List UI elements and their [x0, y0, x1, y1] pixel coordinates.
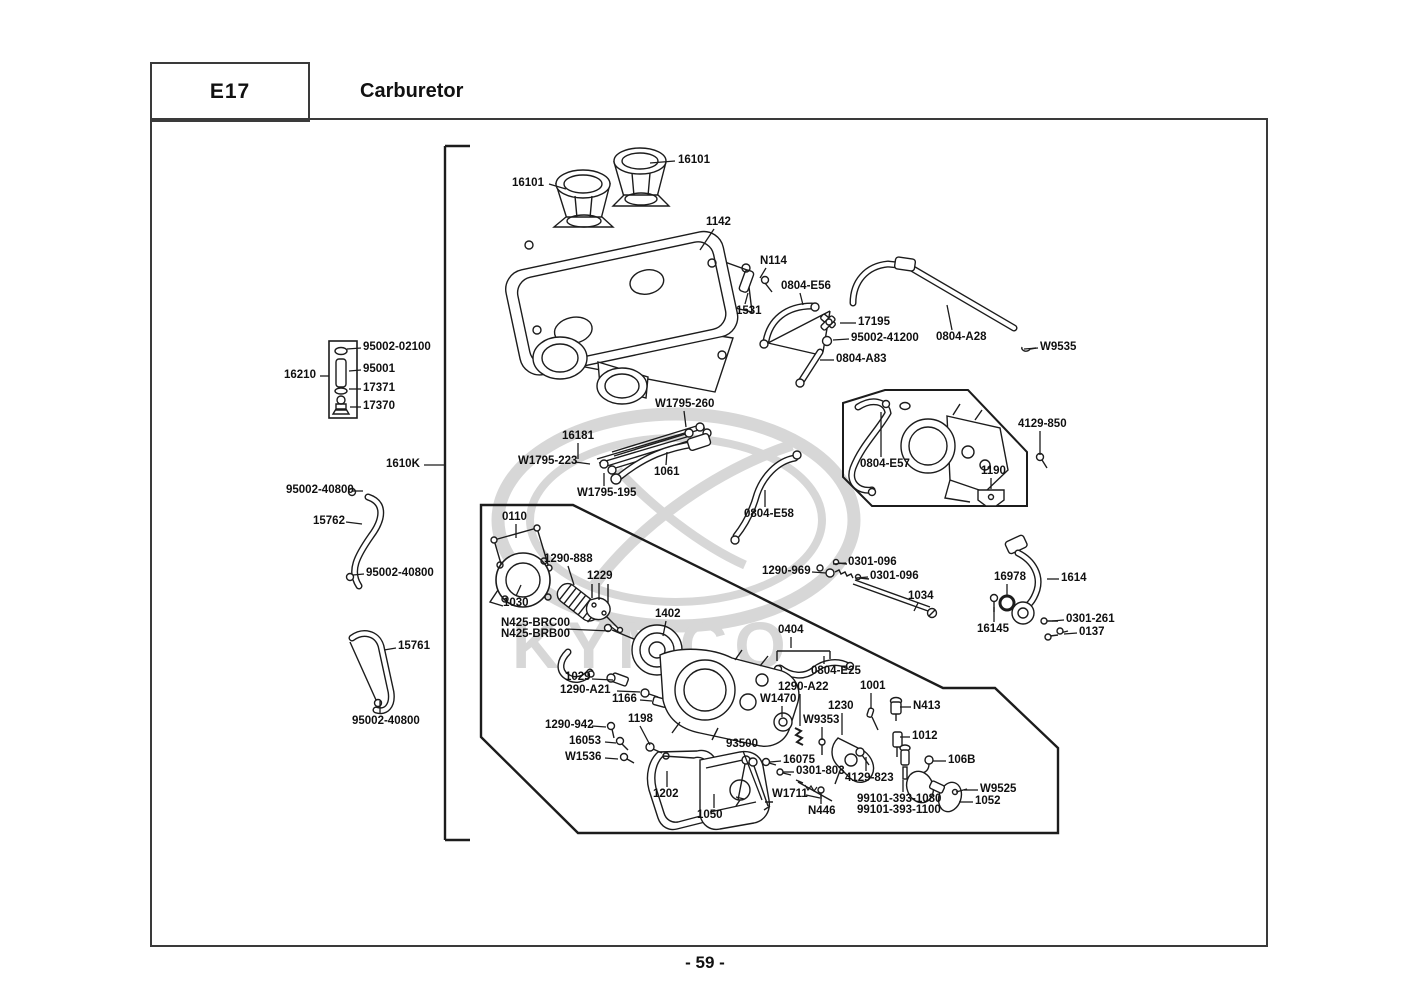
part-label-0404: 0404: [778, 625, 804, 636]
part-label-0301-096: 0301-096: [848, 557, 897, 568]
part-label-W1470: W1470: [760, 694, 796, 705]
part-label-1290-942: 1290-942: [545, 720, 594, 731]
part-label-1198: 1198: [628, 714, 653, 725]
part-label-0301-261: 0301-261: [1066, 614, 1115, 625]
part-label-16181: 16181: [562, 431, 594, 442]
part-label-1531: 1531: [736, 306, 762, 317]
part-label-0804-E57: 0804-E57: [860, 459, 910, 470]
part-label-17370: 17370: [363, 401, 395, 412]
part-label-W1795-195: W1795-195: [577, 488, 636, 499]
part-label-1190: 1190: [981, 466, 1006, 477]
content-border: [150, 118, 1268, 947]
part-label-1142: 1142: [706, 217, 731, 228]
part-label-1614: 1614: [1061, 573, 1087, 584]
part-label-W9535: W9535: [1040, 342, 1076, 353]
part-label-95002-40800: 95002-40800: [286, 485, 354, 496]
part-label-106B: 106B: [948, 755, 976, 766]
part-label-W1711: W1711: [772, 789, 808, 800]
part-label-1001: 1001: [860, 681, 886, 692]
part-label-95001: 95001: [363, 364, 395, 375]
page-number: - 59 -: [640, 953, 770, 973]
part-label-1202: 1202: [653, 789, 679, 800]
part-label-95002-41200: 95002-41200: [851, 333, 919, 344]
part-label-1012: 1012: [912, 731, 938, 742]
part-label-0804-E25: 0804-E25: [811, 666, 861, 677]
part-label-95002-40800: 95002-40800: [366, 568, 434, 579]
section-code: E17: [210, 80, 250, 104]
part-label-1229: 1229: [587, 571, 613, 582]
part-label-1061: 1061: [654, 467, 680, 478]
part-label-1290-888: 1290-888: [544, 554, 593, 565]
part-label-16053: 16053: [569, 736, 601, 747]
part-label-0301-803: 0301-803: [796, 766, 845, 777]
part-label-17195: 17195: [858, 317, 890, 328]
part-label-1610K: 1610K: [386, 459, 420, 470]
part-label-0804-A83: 0804-A83: [836, 354, 887, 365]
part-label-0804-E56: 0804-E56: [781, 281, 831, 292]
part-label-93500: 93500: [726, 739, 758, 750]
part-label-95002-40800: 95002-40800: [352, 716, 420, 727]
part-label-1230: 1230: [828, 701, 854, 712]
part-label-1290-A22: 1290-A22: [778, 682, 829, 693]
part-label-1166: 1166: [612, 694, 637, 705]
part-label-4129-823: 4129-823: [845, 773, 894, 784]
part-label-N114: N114: [760, 256, 787, 267]
part-label-W1795-260: W1795-260: [655, 399, 714, 410]
part-label-N425-BRB00: N425-BRB00: [501, 629, 570, 640]
part-label-W9525: W9525: [980, 784, 1016, 795]
section-code-box: E17: [150, 62, 310, 122]
part-label-1290-A21: 1290-A21: [560, 685, 611, 696]
part-label-0804-E58: 0804-E58: [744, 509, 794, 520]
part-label-1029: 1029: [565, 672, 591, 683]
part-label-4129-850: 4129-850: [1018, 419, 1067, 430]
part-label-N446: N446: [808, 806, 836, 817]
part-label-17371: 17371: [363, 383, 395, 394]
part-label-1030: 1030: [503, 598, 529, 609]
part-label-16101: 16101: [678, 155, 710, 166]
part-label-99101-393-1100: 99101-393-1100: [857, 805, 941, 816]
part-label-1034: 1034: [908, 591, 934, 602]
part-label-0804-A28: 0804-A28: [936, 332, 987, 343]
part-label-16145: 16145: [977, 624, 1009, 635]
part-label-1050: 1050: [697, 810, 723, 821]
part-label-15762: 15762: [313, 516, 345, 527]
part-label-16978: 16978: [994, 572, 1026, 583]
part-label-15761: 15761: [398, 641, 430, 652]
part-label-16210: 16210: [284, 370, 316, 381]
part-label-W1536: W1536: [565, 752, 601, 763]
part-label-1052: 1052: [975, 796, 1001, 807]
part-label-16101: 16101: [512, 178, 544, 189]
parts-catalog-page: KYMCO: [0, 0, 1415, 1000]
part-label-1402: 1402: [655, 609, 681, 620]
part-label-1290-969: 1290-969: [762, 566, 811, 577]
part-label-N413: N413: [913, 701, 941, 712]
page-title: Carburetor: [360, 80, 463, 103]
part-label-95002-02100: 95002-02100: [363, 342, 431, 353]
part-label-0137: 0137: [1079, 627, 1105, 638]
part-label-0110: 0110: [502, 512, 527, 523]
part-label-W1795-223: W1795-223: [518, 456, 577, 467]
part-label-0301-096: 0301-096: [870, 571, 919, 582]
part-label-W9353: W9353: [803, 715, 839, 726]
